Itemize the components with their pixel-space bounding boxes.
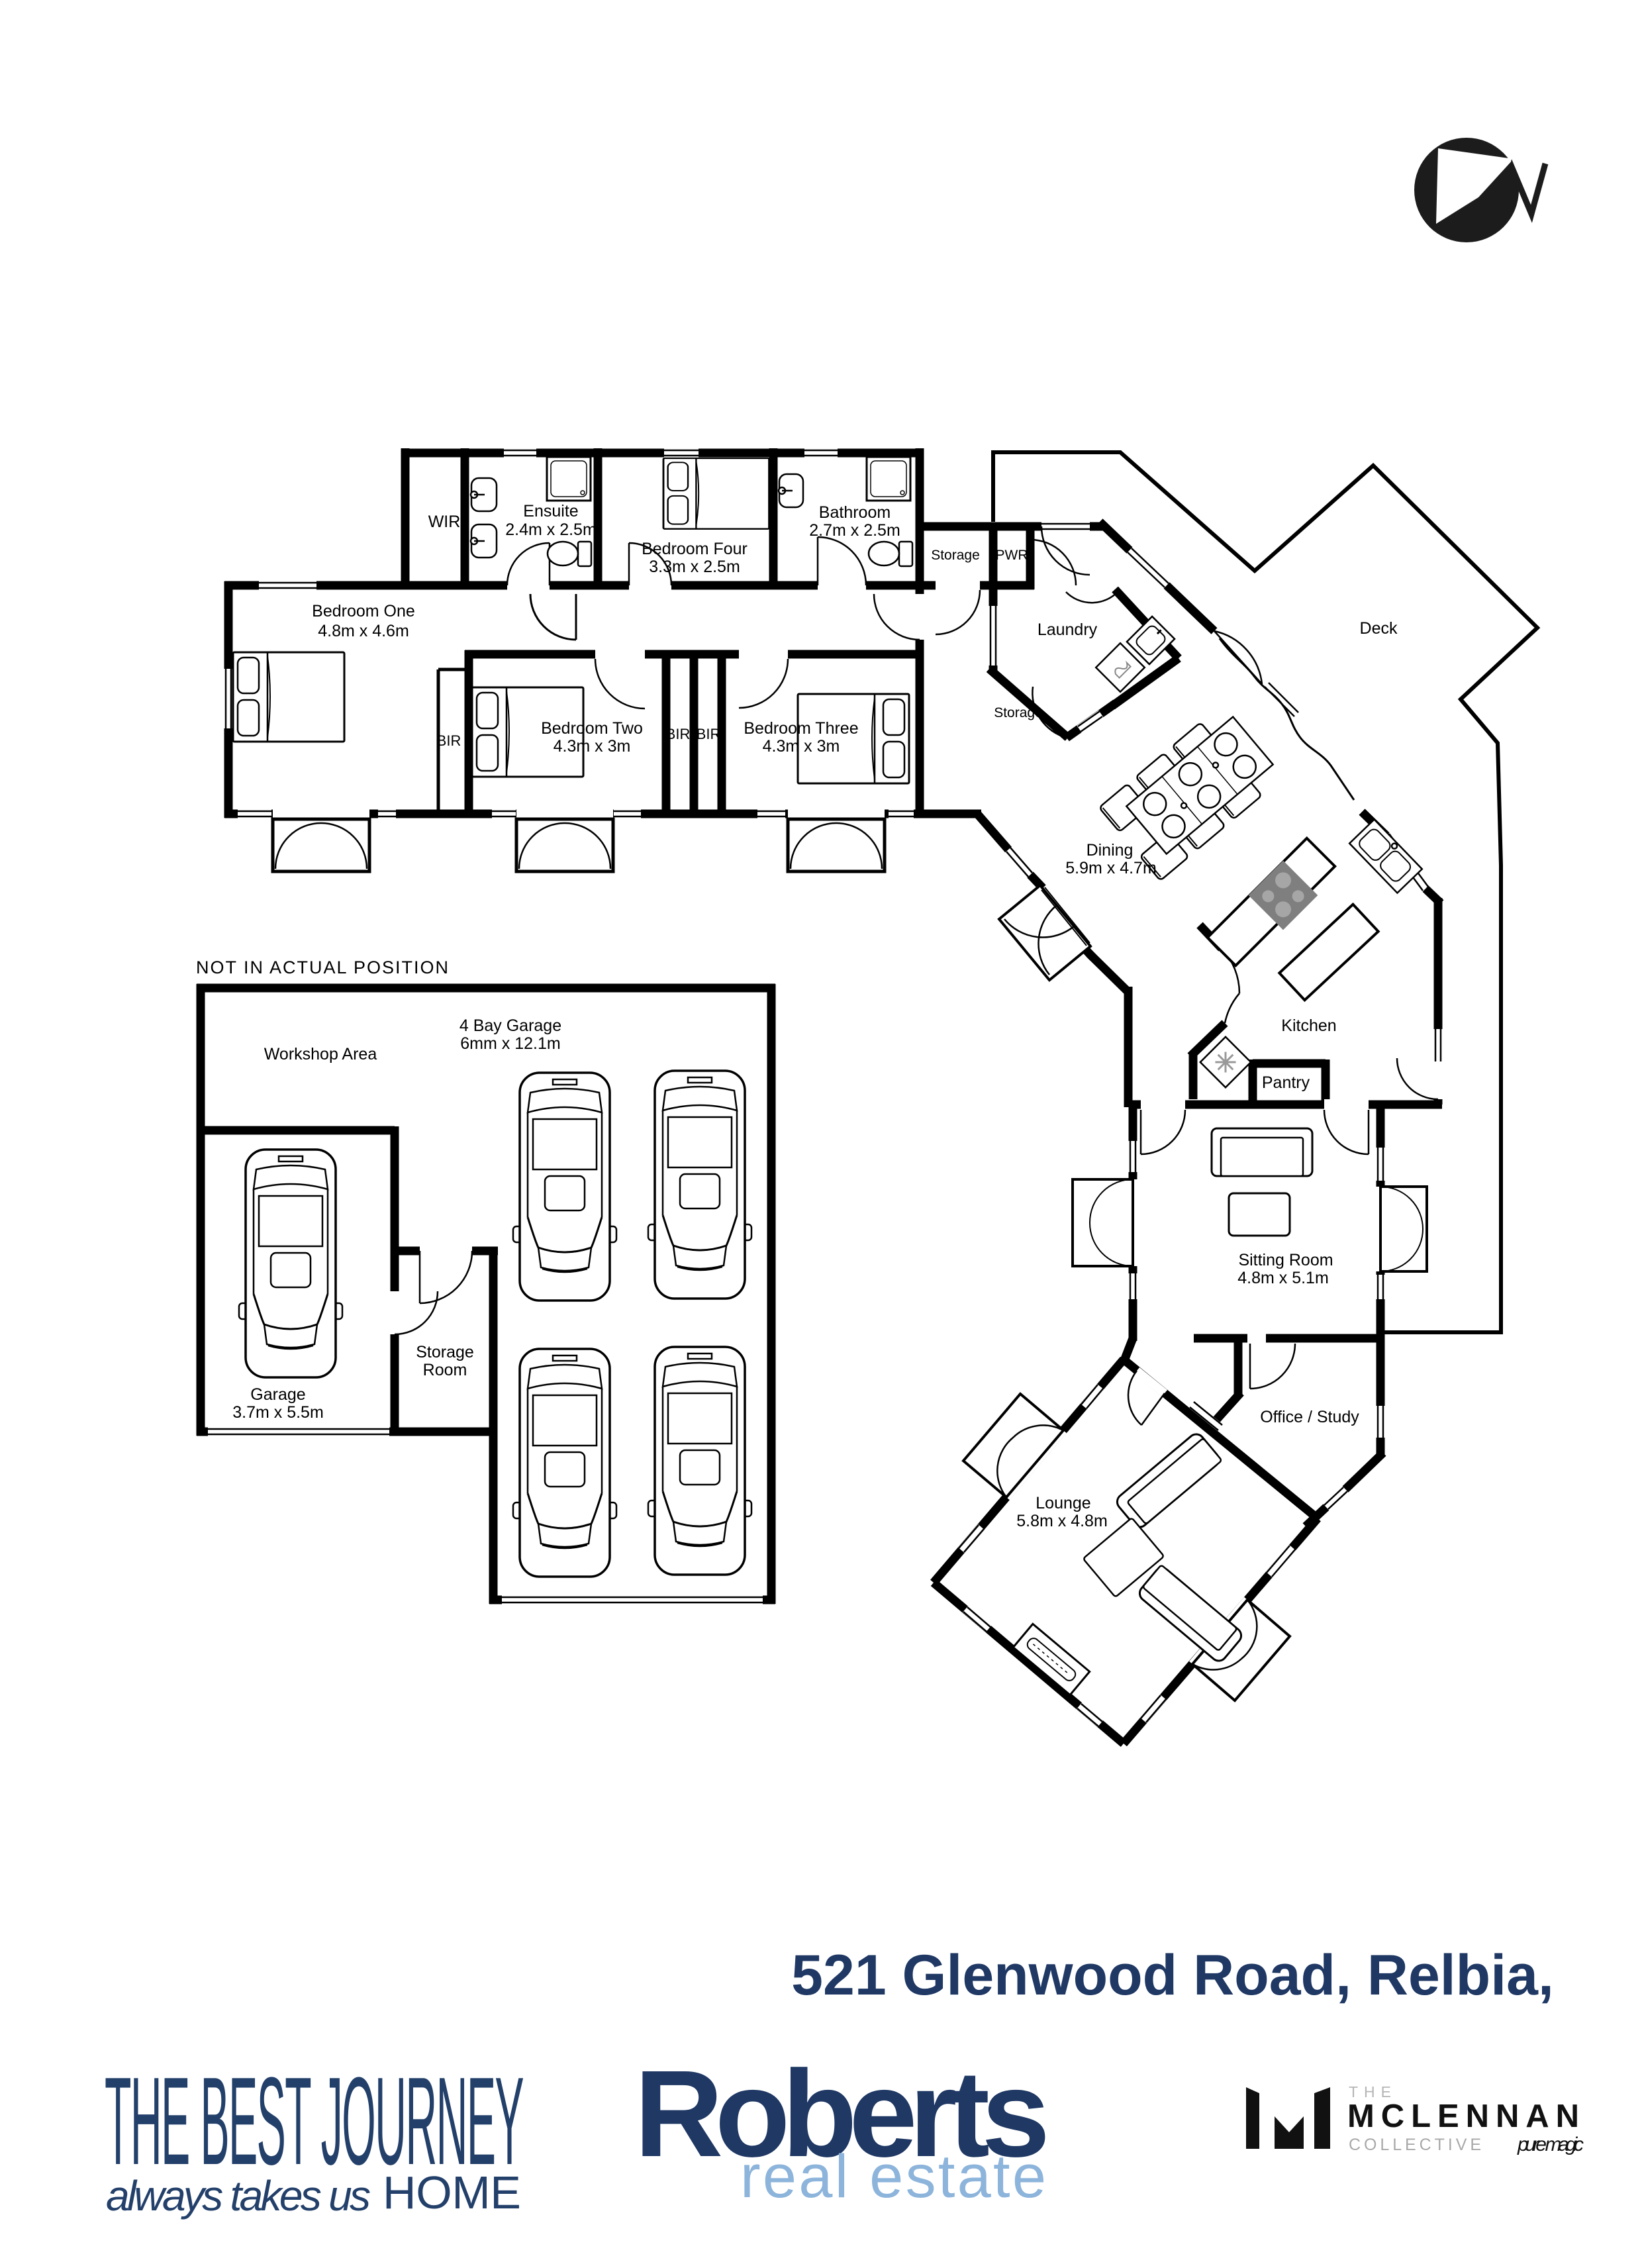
svg-text:Pantry: Pantry (1262, 1073, 1310, 1092)
svg-text:Dining: Dining (1087, 841, 1134, 860)
svg-text:3.7m x 5.5m: 3.7m x 5.5m (232, 1403, 324, 1422)
svg-text:4 Bay Garage: 4 Bay Garage (459, 1016, 561, 1035)
svg-text:5.8m x 4.8m: 5.8m x 4.8m (1016, 1512, 1108, 1530)
svg-text:Laundry: Laundry (1038, 620, 1098, 639)
svg-text:Storage: Storage (994, 705, 1043, 720)
svg-text:Workshop Area: Workshop Area (264, 1045, 377, 1063)
svg-text:Bedroom Three: Bedroom Three (744, 719, 858, 738)
svg-text:Bedroom Two: Bedroom Two (541, 719, 643, 738)
svg-text:NOT IN ACTUAL POSITION: NOT IN ACTUAL POSITION (196, 958, 450, 977)
svg-text:Deck: Deck (1360, 619, 1398, 638)
svg-text:6mm x 12.1m: 6mm x 12.1m (460, 1034, 560, 1053)
svg-text:COLLECTIVE: COLLECTIVE (1349, 2136, 1488, 2154)
svg-text:always takes us: always takes us (106, 2172, 371, 2220)
svg-text:BIR: BIR (437, 732, 461, 749)
svg-text:Storage: Storage (931, 548, 980, 563)
svg-text:Bathroom: Bathroom (819, 503, 891, 522)
svg-text:HOME: HOME (383, 2167, 525, 2218)
svg-text:Room: Room (423, 1361, 467, 1379)
svg-text:3.3m x 2.5m: 3.3m x 2.5m (649, 558, 740, 576)
svg-text:521 Glenwood Road, Relbia,: 521 Glenwood Road, Relbia, (791, 1944, 1554, 2007)
svg-text:2.4m x 2.5m: 2.4m x 2.5m (505, 520, 597, 539)
svg-text:Bedroom One: Bedroom One (312, 602, 415, 620)
svg-text:4.3m x 3m: 4.3m x 3m (763, 737, 840, 756)
svg-text:BIR: BIR (666, 726, 691, 742)
svg-text:BIR: BIR (697, 726, 721, 742)
svg-text:Ensuite: Ensuite (523, 502, 578, 520)
svg-text:2.7m x 2.5m: 2.7m x 2.5m (809, 521, 900, 540)
svg-text:4.8m x 5.1m: 4.8m x 5.1m (1237, 1269, 1329, 1287)
svg-text:PWR: PWR (996, 548, 1028, 563)
svg-text:5.9m x 4.7m: 5.9m x 4.7m (1065, 859, 1157, 877)
svg-text:Storage: Storage (416, 1343, 474, 1361)
svg-text:Office / Study: Office / Study (1260, 1408, 1359, 1426)
svg-text:4.3m x 3m: 4.3m x 3m (554, 737, 631, 756)
svg-text:Lounge: Lounge (1036, 1494, 1090, 1512)
svg-text:pure magic: pure magic (1517, 2134, 1584, 2155)
svg-text:Kitchen: Kitchen (1281, 1016, 1336, 1035)
svg-text:real estate: real estate (740, 2143, 1046, 2210)
svg-text:4.8m x 4.6m: 4.8m x 4.6m (318, 622, 409, 640)
svg-text:Sitting Room: Sitting Room (1238, 1251, 1333, 1269)
svg-text:Bedroom Four: Bedroom Four (642, 540, 748, 558)
svg-text:Garage: Garage (250, 1385, 305, 1404)
svg-text:WIR: WIR (428, 513, 461, 531)
